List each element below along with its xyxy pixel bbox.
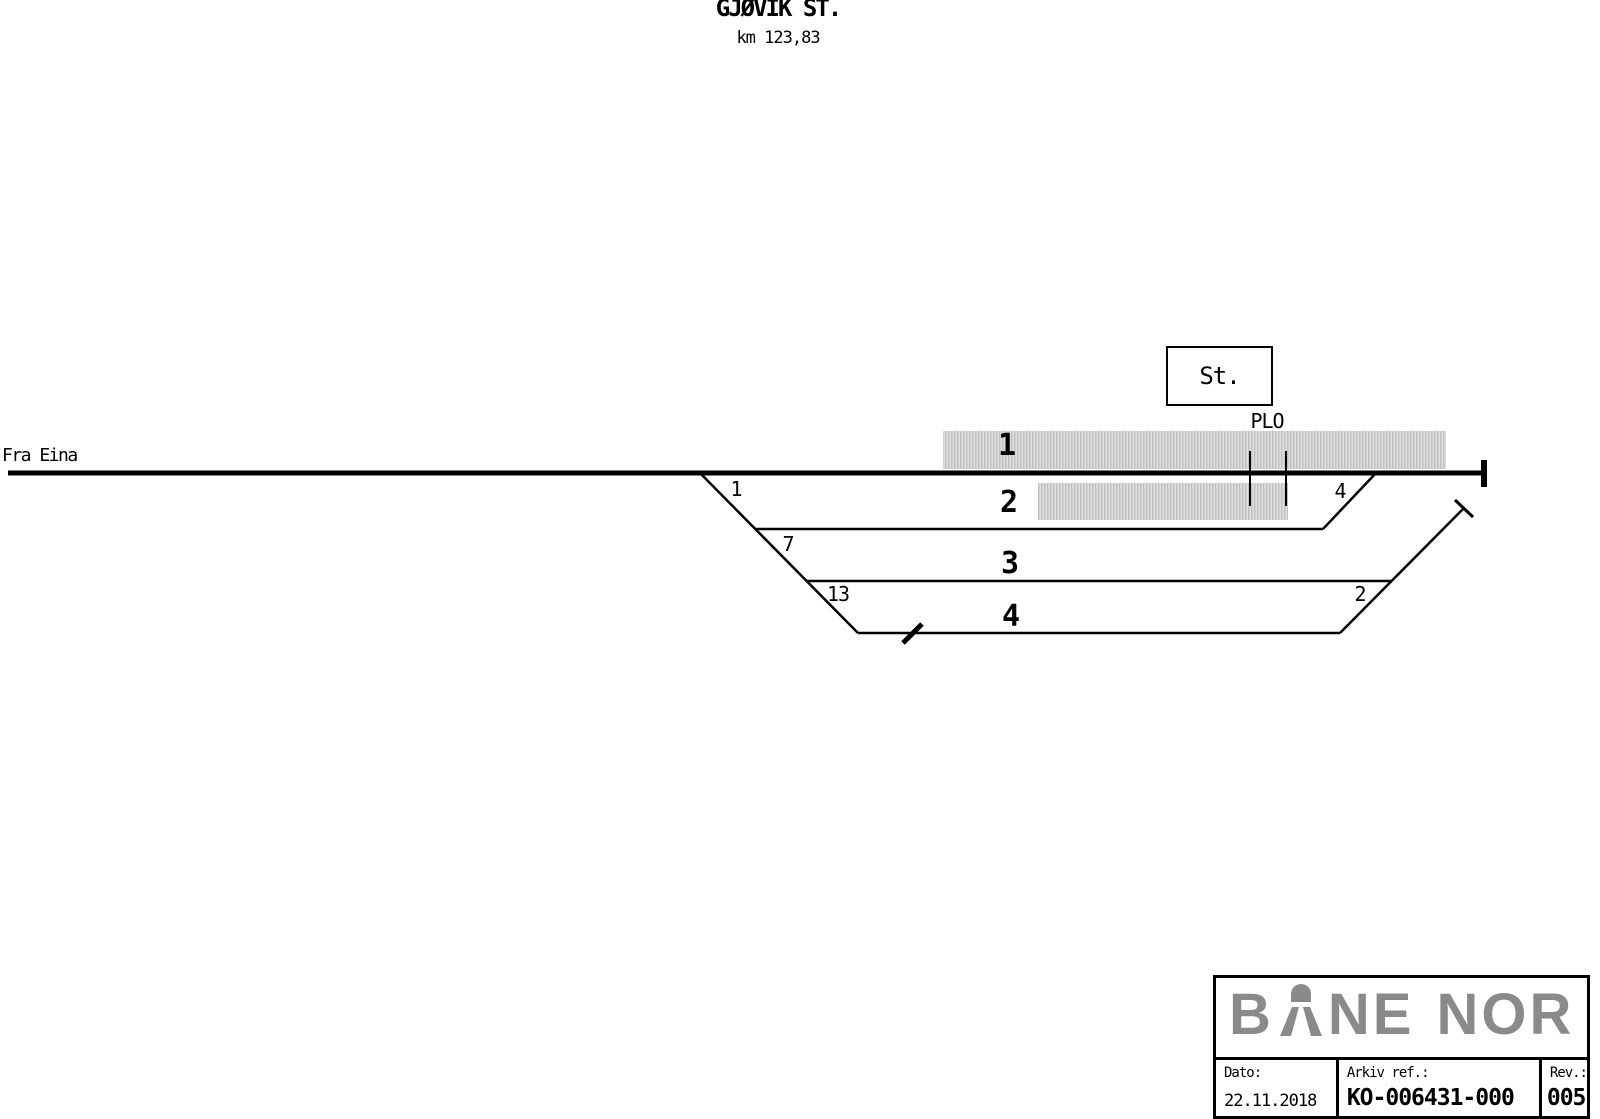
switch-13-label: 13	[827, 584, 849, 604]
bane-nor-a-icon	[1279, 980, 1323, 1036]
track-3-label: 3	[1001, 549, 1017, 579]
track-4-label: 4	[1002, 602, 1018, 632]
switch-1-label: 1	[730, 479, 741, 499]
level-crossing-label: PLO	[1250, 411, 1283, 431]
title-block-fields: Dato: 22.11.2018 Arkiv ref.: KO-006431-0…	[1216, 1060, 1587, 1116]
ladder-track	[700, 473, 858, 633]
revision-cell: Rev.: 005	[1542, 1060, 1587, 1116]
track-diagram	[0, 0, 1600, 1119]
switch-4-label: 4	[1334, 481, 1345, 501]
switch-2-label: 2	[1354, 584, 1365, 604]
title-block: B NE NOR Dato: 22.11.2018 Arkiv ref.: KO…	[1213, 975, 1590, 1119]
switch-7-label: 7	[782, 534, 793, 554]
station-building-box: St.	[1166, 346, 1273, 406]
station-building-label: St.	[1199, 362, 1239, 390]
track-1-label: 1	[998, 431, 1014, 461]
from-direction-label: Fra Eina	[2, 447, 77, 465]
exit-track	[1340, 508, 1464, 633]
archive-ref-label: Arkiv ref.:	[1339, 1060, 1539, 1081]
archive-ref-value: KO-006431-000	[1339, 1085, 1539, 1116]
archive-ref-cell: Arkiv ref.: KO-006431-000	[1339, 1060, 1542, 1116]
logo-letters-ne: NE	[1328, 981, 1415, 1048]
track-2-merge	[1323, 473, 1376, 529]
platform-1	[943, 431, 1446, 469]
track-2-label: 2	[1000, 488, 1016, 518]
revision-value: 005	[1542, 1085, 1587, 1116]
logo-letters-nor: NOR	[1436, 981, 1574, 1048]
date-label: Dato:	[1216, 1060, 1336, 1081]
revision-label: Rev.:	[1542, 1060, 1587, 1081]
date-value: 22.11.2018	[1216, 1091, 1336, 1116]
logo-letter-b: B	[1229, 981, 1274, 1048]
bane-nor-logo: B NE NOR	[1216, 978, 1587, 1060]
date-cell: Dato: 22.11.2018	[1216, 1060, 1339, 1116]
